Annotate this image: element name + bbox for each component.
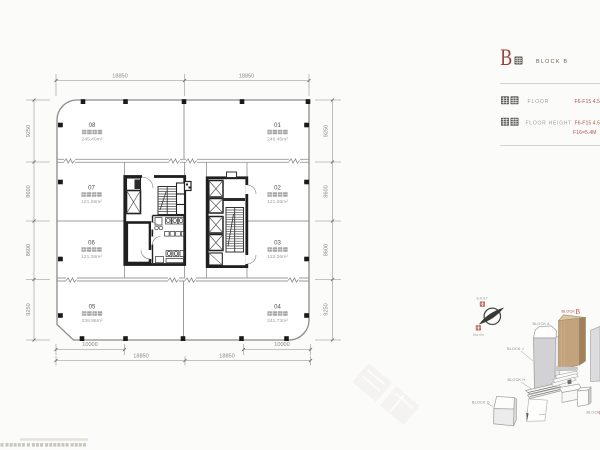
- svg-text:8600: 8600: [26, 185, 32, 197]
- svg-text:F16=5.4M: F16=5.4M: [573, 130, 597, 136]
- svg-text:F6-F15 4.5M: F6-F15 4.5M: [575, 99, 600, 105]
- svg-text:9250: 9250: [26, 125, 32, 137]
- svg-text:18850: 18850: [112, 74, 128, 80]
- svg-text:10000: 10000: [274, 342, 290, 348]
- svg-text:02: 02: [274, 185, 281, 191]
- svg-text:238.98m²: 238.98m²: [82, 318, 103, 324]
- svg-text:241.73m²: 241.73m²: [267, 318, 288, 324]
- svg-text:BLOCK H: BLOCK H: [508, 378, 526, 382]
- svg-text:B: B: [576, 309, 581, 316]
- svg-text:B: B: [500, 46, 512, 71]
- svg-text:9250: 9250: [324, 303, 330, 315]
- svg-text:246.45m²: 246.45m²: [267, 136, 288, 142]
- svg-text:BLOCK: BLOCK: [562, 310, 576, 314]
- svg-text:BLOCK J: BLOCK J: [507, 347, 524, 351]
- svg-text:245.40m²: 245.40m²: [82, 136, 103, 142]
- svg-text:121.26m²: 121.26m²: [81, 254, 102, 260]
- svg-text:BLOCK G: BLOCK G: [472, 401, 490, 405]
- svg-text:North: North: [473, 332, 484, 337]
- svg-text:08: 08: [89, 123, 96, 129]
- svg-text:18850: 18850: [239, 74, 255, 80]
- svg-text:FLOOR HEIGHT: FLOOR HEIGHT: [526, 121, 573, 127]
- svg-text:F6-F15 4.5M: F6-F15 4.5M: [575, 121, 600, 127]
- svg-text:121.26m²: 121.26m²: [267, 199, 288, 205]
- svg-text:06: 06: [88, 240, 95, 246]
- svg-text:8600: 8600: [26, 244, 32, 256]
- svg-text:07: 07: [88, 185, 95, 191]
- svg-text:01: 01: [274, 123, 281, 129]
- svg-text:03: 03: [274, 240, 281, 246]
- svg-text:8600: 8600: [324, 185, 330, 197]
- svg-text:9250: 9250: [26, 303, 32, 315]
- svg-text:122.26m²: 122.26m²: [267, 254, 288, 260]
- svg-text:EAST: EAST: [476, 296, 488, 301]
- svg-text:9250: 9250: [324, 125, 330, 137]
- svg-text:8600: 8600: [324, 244, 330, 256]
- svg-text:18850: 18850: [219, 354, 235, 360]
- svg-text:FLOOR: FLOOR: [528, 99, 550, 105]
- svg-text:121.26m²: 121.26m²: [81, 199, 102, 205]
- svg-text:BLOCK A: BLOCK A: [533, 322, 551, 326]
- svg-text:10000: 10000: [82, 342, 98, 348]
- svg-text:05: 05: [89, 304, 96, 310]
- svg-text:BLOCK B: BLOCK B: [536, 59, 568, 65]
- svg-text:04: 04: [274, 304, 281, 310]
- svg-text:18850: 18850: [133, 354, 149, 360]
